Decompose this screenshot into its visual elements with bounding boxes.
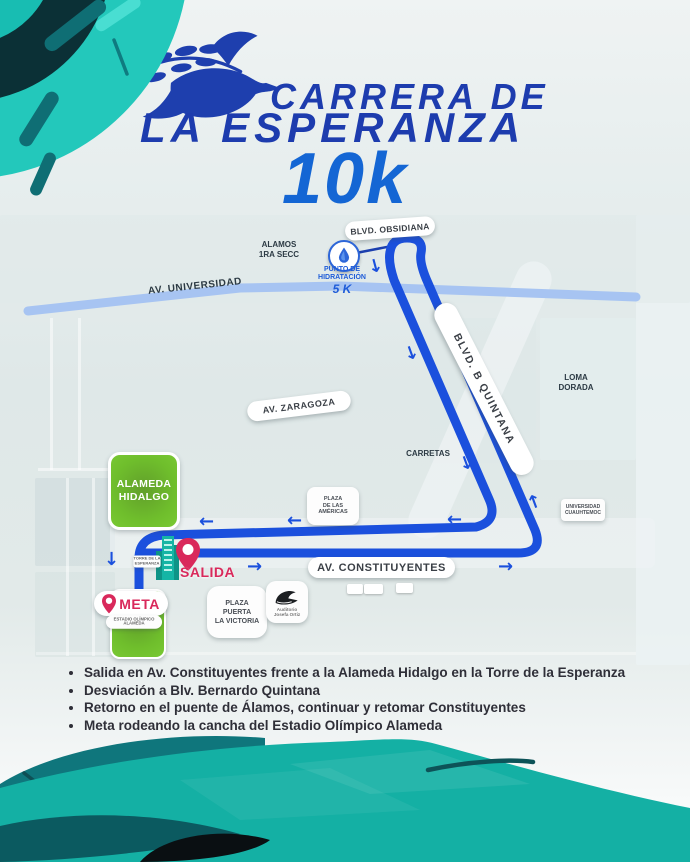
meta-marker: META bbox=[94, 591, 168, 616]
salida-marker-label: SALIDA bbox=[180, 564, 235, 580]
meta-text: META bbox=[119, 596, 160, 612]
hydration-label: PUNTO DEHIDRATACIÓN bbox=[310, 266, 374, 282]
place-label-text: PLAZA PUERTA LA VICTORIA bbox=[215, 599, 259, 626]
route-note-text: Salida en Av. Constituyentes frente a la… bbox=[84, 665, 625, 680]
auditorium-icon bbox=[273, 587, 301, 607]
direction-arrow-icon: ← bbox=[199, 513, 214, 531]
direction-arrow-icon: ← bbox=[287, 512, 302, 530]
area-label-carretas: CARRETAS bbox=[400, 449, 456, 458]
salida-text: SALIDA bbox=[180, 564, 235, 580]
route-note-text: Desviación a Blv. Bernardo Quintana bbox=[84, 683, 320, 698]
micro-label-chip bbox=[364, 584, 383, 594]
place-label-text: TORRE DE LA ESPERANZA bbox=[133, 557, 160, 566]
estadio-label: ESTADIO OLÍMPICO ALAMEDA bbox=[106, 615, 162, 629]
route-note-text: Retorno en el puente de Álamos, continua… bbox=[84, 700, 526, 715]
micro-label-chip bbox=[396, 583, 413, 593]
place-plaza-victoria: PLAZA PUERTA LA VICTORIA bbox=[207, 586, 267, 638]
place-label-text: ALAMEDA HIDALGO bbox=[117, 478, 172, 504]
place-label-text: PLAZA DE LAS AMÉRICAS bbox=[318, 496, 347, 516]
corner-swoosh-decoration bbox=[0, 0, 220, 235]
route-note-item: Salida en Av. Constituyentes frente a la… bbox=[84, 664, 647, 682]
area-label-text: CARRETAS bbox=[406, 449, 450, 458]
meta-pin-icon bbox=[102, 594, 116, 614]
direction-arrow-icon: → bbox=[247, 558, 262, 576]
micro-label-chip bbox=[347, 584, 363, 594]
place-alameda-hidalgo: ALAMEDA HIDALGO bbox=[108, 452, 180, 530]
road-label-constituyentes: AV. CONSTITUYENTES bbox=[308, 557, 455, 578]
place-universidad-cuauhtemoc: UNIVERSIDAD CUAUHTEMOC bbox=[561, 499, 605, 521]
hydration-distance: 5 K bbox=[310, 282, 374, 296]
bottom-wave-decoration bbox=[0, 720, 690, 862]
road-label-text: BLVD. OBSIDIANA bbox=[350, 221, 430, 237]
torre-esperanza-label: TORRE DE LA ESPERANZA bbox=[133, 556, 160, 568]
direction-arrow-icon: → bbox=[498, 558, 513, 576]
place-label-text: UNIVERSIDAD CUAUHTEMOC bbox=[565, 504, 601, 516]
hydration-label-line1: PUNTO DE bbox=[324, 266, 360, 273]
area-label-text: LOMA DORADA bbox=[558, 373, 593, 392]
direction-arrow-icon: ← bbox=[447, 511, 462, 529]
route-note-item: Desviación a Blv. Bernardo Quintana bbox=[84, 682, 647, 700]
place-label-text: ESTADIO OLÍMPICO ALAMEDA bbox=[114, 617, 155, 626]
area-label-alamos: ALAMOS 1RA SECC bbox=[250, 240, 308, 260]
place-plaza-americas: PLAZA DE LAS AMÉRICAS bbox=[307, 487, 359, 525]
race-poster: ↓ ↑ ↓ ↓ ↑ ← ← ← → → ↓ BLVD. OBSIDIANA AV… bbox=[0, 0, 690, 862]
area-label-loma-dorada: LOMA DORADA bbox=[548, 373, 604, 393]
hydration-distance-text: 5 K bbox=[333, 282, 352, 296]
road-label-text: AV. ZARAGOZA bbox=[262, 397, 336, 416]
place-label-text: Auditorio Josefa Ortiz bbox=[274, 607, 300, 618]
road-label-text: AV. CONSTITUYENTES bbox=[317, 562, 446, 574]
event-distance: 10k bbox=[282, 138, 408, 220]
route-note-item: Retorno en el puente de Álamos, continua… bbox=[84, 699, 647, 717]
water-drop-icon bbox=[337, 247, 351, 265]
place-auditorio: Auditorio Josefa Ortiz bbox=[266, 581, 308, 623]
direction-arrow-icon: ↓ bbox=[104, 551, 119, 569]
hydration-label-line2: HIDRATACIÓN bbox=[318, 274, 366, 281]
distance-text: 10k bbox=[282, 139, 408, 219]
area-label-text: ALAMOS 1RA SECC bbox=[259, 240, 299, 259]
